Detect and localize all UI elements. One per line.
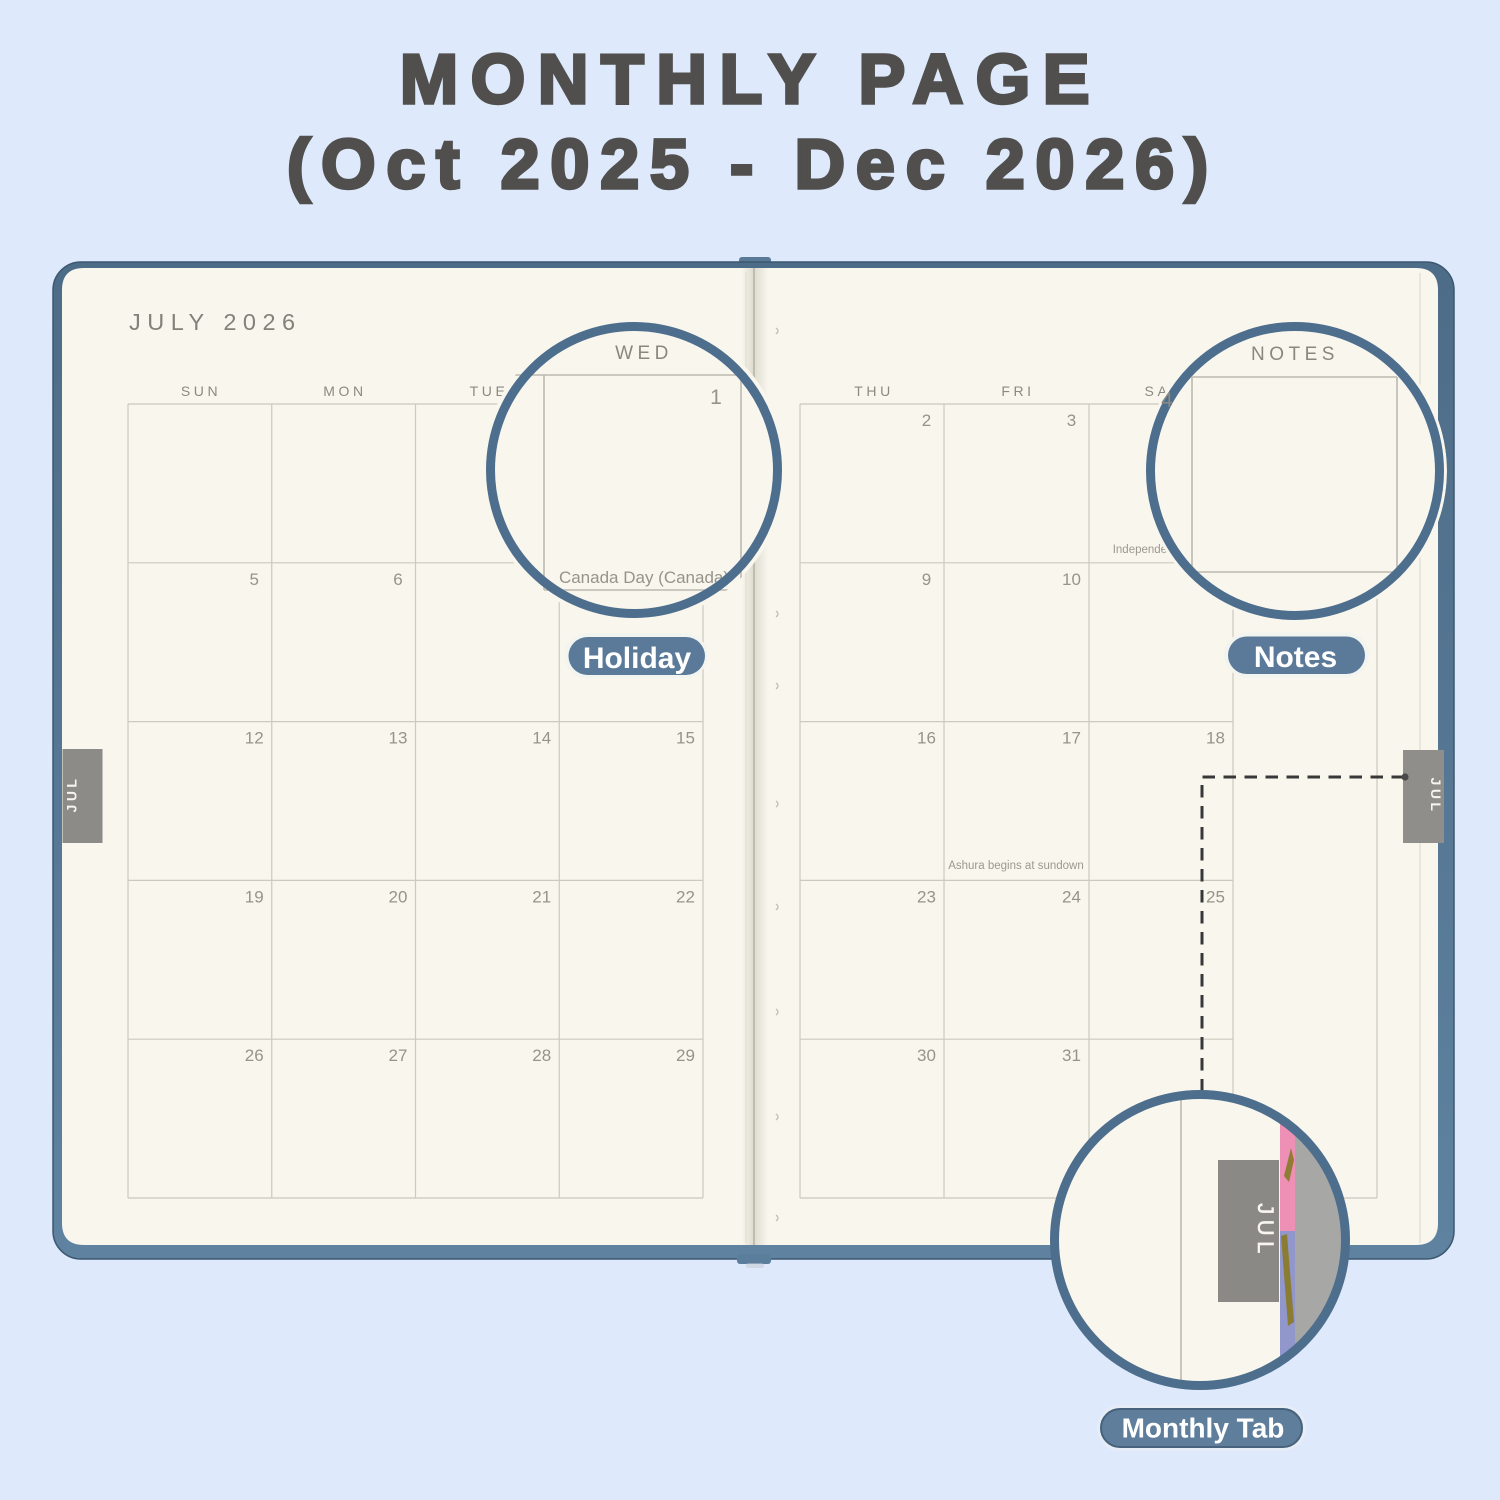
svg-text:29: 29 bbox=[676, 1046, 695, 1065]
svg-text:Monthly Tab: Monthly Tab bbox=[1122, 1413, 1285, 1444]
svg-text:28: 28 bbox=[532, 1046, 551, 1065]
svg-text:10: 10 bbox=[1062, 570, 1081, 589]
svg-text:13: 13 bbox=[389, 729, 408, 748]
svg-text:WED: WED bbox=[615, 343, 673, 364]
svg-text:JUL: JUL bbox=[1253, 1203, 1278, 1259]
svg-text:9: 9 bbox=[922, 570, 931, 589]
svg-text:22: 22 bbox=[676, 887, 695, 906]
svg-text:Ashura begins at sundown: Ashura begins at sundown bbox=[948, 860, 1084, 872]
svg-text:30: 30 bbox=[917, 1046, 936, 1065]
svg-text:5: 5 bbox=[250, 570, 259, 589]
svg-text:THU: THU bbox=[854, 383, 894, 399]
svg-text:20: 20 bbox=[389, 887, 408, 906]
svg-text:27: 27 bbox=[389, 1046, 408, 1065]
svg-text:23: 23 bbox=[917, 887, 936, 906]
svg-text:18: 18 bbox=[1206, 729, 1225, 748]
svg-text:2: 2 bbox=[922, 411, 931, 430]
svg-text:FRI: FRI bbox=[1001, 383, 1034, 399]
svg-text:MON: MON bbox=[323, 383, 366, 399]
svg-text:NOTES: NOTES bbox=[1251, 344, 1339, 365]
svg-text:Canada Day (Canada): Canada Day (Canada) bbox=[559, 568, 729, 587]
svg-text:14: 14 bbox=[532, 729, 551, 748]
svg-text:26: 26 bbox=[245, 1046, 264, 1065]
svg-text:(Oct 2025 - Dec 2026): (Oct 2025 - Dec 2026) bbox=[287, 125, 1219, 203]
svg-text:3: 3 bbox=[1067, 411, 1076, 430]
svg-text:16: 16 bbox=[917, 729, 936, 748]
svg-text:4: 4 bbox=[1161, 389, 1173, 412]
svg-text:6: 6 bbox=[393, 570, 402, 589]
svg-text:24: 24 bbox=[1062, 887, 1081, 906]
svg-text:Notes: Notes bbox=[1254, 641, 1337, 674]
svg-text:1: 1 bbox=[710, 386, 722, 409]
svg-text:MONTHLY PAGE: MONTHLY PAGE bbox=[400, 40, 1102, 118]
svg-text:Holiday: Holiday bbox=[583, 642, 692, 675]
svg-text:12: 12 bbox=[245, 729, 264, 748]
svg-text:15: 15 bbox=[676, 729, 695, 748]
svg-text:17: 17 bbox=[1062, 729, 1081, 748]
svg-text:19: 19 bbox=[245, 887, 264, 906]
svg-text:31: 31 bbox=[1062, 1046, 1081, 1065]
svg-text:JUL: JUL bbox=[1428, 778, 1444, 815]
svg-text:JUL: JUL bbox=[64, 776, 80, 813]
svg-text:21: 21 bbox=[532, 887, 551, 906]
svg-text:25: 25 bbox=[1206, 887, 1225, 906]
svg-text:SUN: SUN bbox=[181, 383, 221, 399]
svg-text:JULY 2026: JULY 2026 bbox=[129, 309, 302, 335]
